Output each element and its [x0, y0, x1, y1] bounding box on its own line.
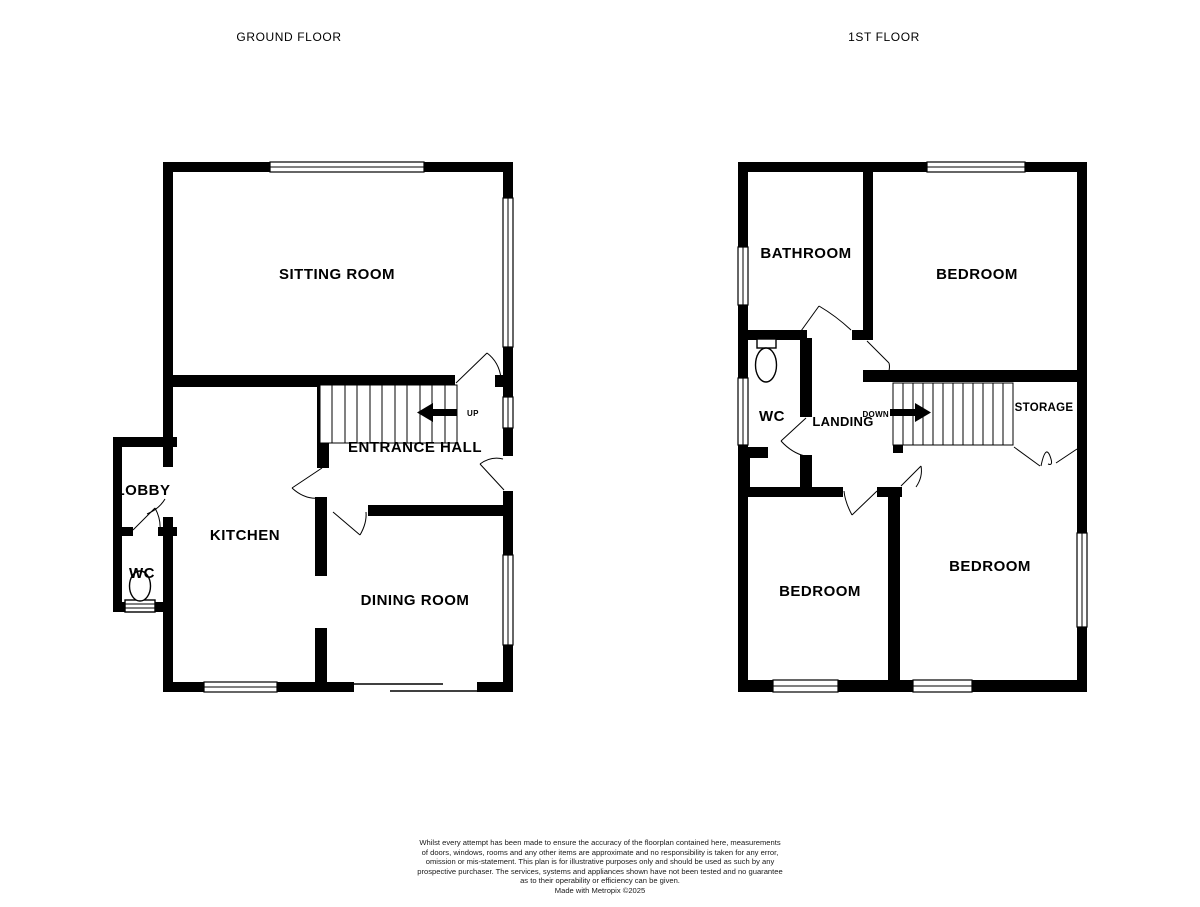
- window: [738, 247, 748, 305]
- door-lobby: [147, 499, 165, 514]
- door-dining-room: [333, 512, 366, 535]
- window: [503, 397, 513, 428]
- room-label-kitchen: KITCHEN: [210, 527, 280, 544]
- window: [773, 680, 838, 692]
- first-floor-plan: 1ST FLOOR: [738, 30, 1087, 692]
- window: [738, 378, 748, 445]
- room-label-storage: STORAGE: [1015, 402, 1074, 414]
- floorplan-page: GROUND FLOOR: [0, 0, 1200, 907]
- door-wc: [133, 508, 160, 530]
- toilet-icon: [756, 339, 777, 382]
- storage-bifold-door: [1014, 447, 1077, 466]
- first-floor-staircase: DOWN: [862, 383, 1013, 445]
- door-bedroom-bottom-right: [901, 466, 921, 487]
- door-bathroom: [801, 306, 851, 331]
- door-sitting-room: [456, 353, 501, 383]
- window: [204, 682, 277, 692]
- disclaimer: Whilst every attempt has been made to en…: [0, 838, 1200, 896]
- disclaimer-line: omission or mis-statement. This plan is …: [0, 857, 1200, 867]
- stairs-up-label: UP: [467, 409, 479, 418]
- sliding-door: [353, 684, 478, 691]
- window: [913, 680, 972, 692]
- room-label-bedroom-bottom-left: BEDROOM: [779, 583, 861, 600]
- room-label-sitting-room: SITTING ROOM: [279, 266, 395, 283]
- disclaimer-line: of doors, windows, rooms and any other i…: [0, 848, 1200, 858]
- ground-floor-plan: GROUND FLOOR: [113, 30, 513, 692]
- ground-floor-title: GROUND FLOOR: [236, 30, 341, 44]
- first-floor-title: 1ST FLOOR: [848, 30, 920, 44]
- door-bedroom-bottom-left: [844, 491, 877, 515]
- room-label-wc-first: WC: [759, 408, 785, 425]
- window: [270, 162, 424, 172]
- door-kitchen: [292, 468, 322, 498]
- room-label-landing: LANDING: [812, 414, 873, 429]
- floorplan-canvas: GROUND FLOOR: [0, 0, 1200, 907]
- disclaimer-line: Whilst every attempt has been made to en…: [0, 838, 1200, 848]
- window: [1077, 533, 1087, 627]
- ground-floor-staircase: UP: [320, 385, 479, 443]
- disclaimer-line: prospective purchaser. The services, sys…: [0, 867, 1200, 877]
- room-label-bathroom: BATHROOM: [760, 245, 851, 262]
- disclaimer-line: as to their operability or efficiency ca…: [0, 876, 1200, 886]
- room-label-bedroom-top: BEDROOM: [936, 266, 1018, 283]
- room-label-wc-ground: WC: [129, 565, 155, 582]
- metropix-credit: Made with Metropix ©2025: [0, 886, 1200, 896]
- window: [927, 162, 1025, 172]
- room-label-entrance-hall: ENTRANCE HALL: [348, 439, 482, 456]
- room-label-lobby: LOBBY: [116, 482, 171, 499]
- window: [503, 555, 513, 645]
- front-door: [480, 458, 504, 490]
- room-label-bedroom-bottom-right: BEDROOM: [949, 558, 1031, 575]
- room-label-dining-room: DINING ROOM: [361, 592, 470, 609]
- window: [503, 198, 513, 347]
